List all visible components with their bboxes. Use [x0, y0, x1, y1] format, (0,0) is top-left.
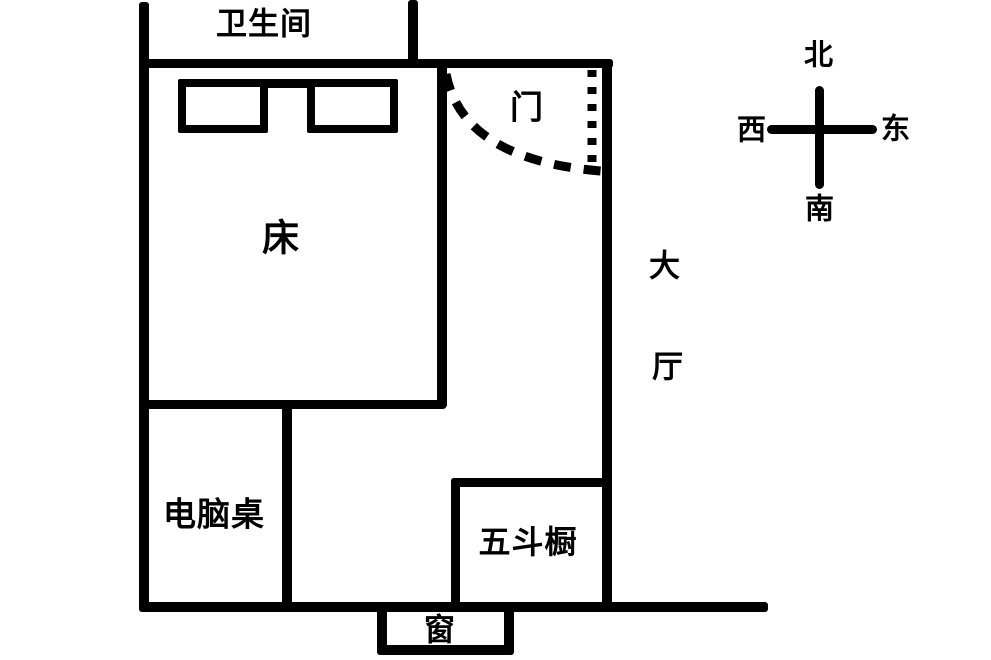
chest-label: 五斗橱: [478, 526, 577, 558]
north-wall: [139, 59, 613, 68]
computer-desk-label: 电脑桌: [163, 498, 265, 531]
compass-horizontal-bar: [767, 125, 877, 134]
bathroom-wall-stub: [408, 0, 418, 68]
door-label: 门: [510, 91, 544, 124]
floor-plan-canvas: 卫生间 床 门 电脑桌 五斗橱 窗 大 厅 北 西 东 南: [0, 0, 991, 660]
bathroom-label: 卫生间: [216, 9, 312, 40]
bed-wall-bottom: [141, 400, 446, 409]
window-label: 窗: [424, 615, 456, 646]
pillow-connector: [262, 79, 312, 88]
hall-label-char-1: 大: [649, 251, 681, 282]
compass-vertical-bar: [815, 86, 824, 189]
hall-label-char-2: 厅: [652, 352, 684, 383]
bed-label: 床: [262, 220, 300, 257]
compass-east-label: 东: [881, 116, 911, 145]
chest-wall-top: [451, 478, 611, 487]
compass-west-label: 西: [737, 117, 767, 146]
chest-wall-left: [451, 478, 460, 608]
bed-wall-right: [437, 62, 447, 408]
pillow-2: [307, 79, 398, 133]
left-wall: [139, 2, 149, 611]
desk-wall-right: [282, 406, 292, 612]
east-wall: [602, 59, 612, 612]
compass-south-label: 南: [805, 196, 835, 225]
compass-north-label: 北: [804, 42, 834, 71]
pillow-1: [178, 79, 268, 133]
